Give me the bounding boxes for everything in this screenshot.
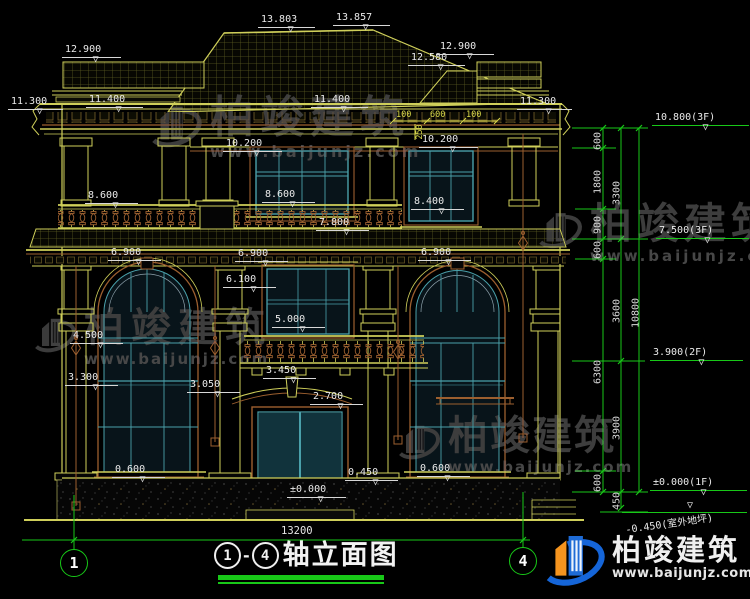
third-floor-window-center bbox=[246, 147, 358, 221]
title-axis-circle-end: 4 bbox=[252, 542, 279, 569]
elevation-marker: 12.900▽ bbox=[437, 41, 494, 55]
brand-footer: 柏竣建筑 www.baijunjz.com bbox=[540, 524, 750, 592]
axis-bubble-1: 1 bbox=[60, 549, 88, 577]
level-triangle-icon: ▽ bbox=[341, 105, 347, 114]
level-triangle-icon: ▽ bbox=[140, 475, 146, 484]
axis-bubble-4: 4 bbox=[509, 547, 537, 575]
level-triangle-icon: ▽ bbox=[445, 474, 451, 483]
dim-text: 1800 bbox=[593, 170, 604, 194]
level-triangle-icon: ▽ bbox=[450, 145, 456, 154]
level-triangle-icon: ▽ bbox=[291, 376, 297, 385]
title-separator: - bbox=[243, 546, 250, 565]
dim-text: 3900 bbox=[612, 416, 623, 440]
level-triangle-icon: ▽ bbox=[215, 390, 221, 399]
level-triangle-icon: ▽ bbox=[37, 107, 43, 116]
level-triangle-icon: ▽ bbox=[446, 258, 452, 267]
elevation-marker: 11.400▽ bbox=[86, 94, 143, 108]
level-triangle-icon: ▽ bbox=[300, 325, 306, 334]
level-triangle-icon: ▽ bbox=[700, 488, 706, 497]
elevation-marker: 11.300▽ bbox=[517, 96, 572, 110]
elevation-marker: 10.200▽ bbox=[419, 134, 478, 148]
elevation-marker: 8.600▽ bbox=[85, 190, 138, 204]
level-triangle-icon: ▽ bbox=[338, 402, 344, 411]
title-text: 轴立面图 bbox=[283, 542, 399, 569]
level-triangle-icon: ▽ bbox=[288, 25, 294, 34]
level-triangle-icon: ▽ bbox=[254, 149, 260, 158]
dim-text: 250 bbox=[415, 124, 425, 139]
dim-text: 450 bbox=[612, 492, 623, 510]
level-triangle-icon: ▽ bbox=[251, 285, 257, 294]
level-triangle-icon: ▽ bbox=[318, 495, 324, 504]
overall-width-dim: 13200 bbox=[281, 525, 313, 537]
level-triangle-icon: ▽ bbox=[113, 201, 119, 210]
level-triangle-icon: ▽ bbox=[93, 55, 99, 64]
floor-level-marker: 10.800(3F)▽ bbox=[652, 112, 749, 126]
elevation-marker: 7.800▽ bbox=[316, 217, 369, 231]
elevation-marker: ±0.000▽ bbox=[287, 484, 346, 498]
floor-level-marker: ±0.000(1F)▽ bbox=[650, 477, 747, 491]
elevation-marker: 4.500▽ bbox=[70, 330, 123, 344]
level-triangle-icon: ▽ bbox=[98, 341, 104, 350]
elevation-marker: 5.000▽ bbox=[272, 314, 325, 328]
elevation-marker: 6.900▽ bbox=[108, 247, 161, 261]
dim-text: 600 bbox=[430, 110, 445, 120]
elevation-marker: 0.600▽ bbox=[112, 464, 165, 478]
level-triangle-icon: ▽ bbox=[344, 228, 350, 237]
dim-text: 3600 bbox=[612, 299, 623, 323]
level-triangle-icon: ▽ bbox=[373, 478, 379, 487]
level-triangle-icon: ▽ bbox=[702, 123, 708, 132]
elevation-marker: 12.900▽ bbox=[62, 44, 121, 58]
elevation-marker: 13.857▽ bbox=[333, 12, 390, 26]
level-triangle-icon: ▽ bbox=[263, 259, 269, 268]
level-triangle-icon: ▽ bbox=[698, 358, 704, 367]
drawing-title: 1 - 4 轴立面图 bbox=[214, 542, 399, 569]
dim-text: 600 bbox=[593, 474, 604, 492]
eave-cornice bbox=[32, 104, 570, 151]
level-triangle-icon: ▽ bbox=[687, 501, 693, 510]
elevation-marker: 6.900▽ bbox=[418, 247, 471, 261]
level-triangle-icon: ▽ bbox=[704, 236, 710, 245]
left-arched-window bbox=[92, 258, 206, 477]
brand-url: www.baijunjz.com bbox=[612, 566, 750, 581]
level-triangle-icon: ▽ bbox=[93, 383, 99, 392]
elevation-marker: 3.300▽ bbox=[65, 372, 118, 386]
dim-text: 900 bbox=[593, 216, 604, 234]
floor-level-marker: 3.900(2F)▽ bbox=[650, 347, 743, 361]
dim-text: 100 bbox=[396, 110, 411, 120]
dim-text: 100 bbox=[466, 110, 481, 120]
floor-level-marker: 7.500(3F)▽ bbox=[656, 225, 749, 239]
elevation-marker: 6.900▽ bbox=[235, 248, 288, 262]
level-triangle-icon: ▽ bbox=[546, 107, 552, 116]
title-underline-thick bbox=[218, 575, 384, 580]
title-axis-circle-start: 1 bbox=[214, 542, 241, 569]
brand-logo bbox=[540, 524, 606, 592]
level-triangle-icon: ▽ bbox=[136, 258, 142, 267]
elevation-marker: 13.803▽ bbox=[258, 14, 315, 28]
dim-text: 600 bbox=[593, 241, 604, 259]
elevation-marker: 8.400▽ bbox=[411, 196, 464, 210]
elevation-marker: 0.450▽ bbox=[345, 467, 398, 481]
cad-elevation-sheet: 柏竣建筑 www.baijunjz.com 柏竣建筑 www.baijunjz.… bbox=[0, 0, 750, 599]
level-triangle-icon: ▽ bbox=[439, 207, 445, 216]
elevation-marker: 10.200▽ bbox=[223, 138, 282, 152]
title-underline-thin bbox=[218, 582, 384, 584]
elevation-marker: 8.600▽ bbox=[262, 189, 315, 203]
level-triangle-icon: ▽ bbox=[290, 200, 296, 209]
level-triangle-icon: ▽ bbox=[438, 63, 444, 72]
elevation-marker: 3.450▽ bbox=[263, 365, 316, 379]
elevation-marker: 6.100▽ bbox=[223, 274, 276, 288]
dim-text: 6300 bbox=[593, 360, 604, 384]
elevation-marker: 3.050▽ bbox=[187, 379, 240, 393]
dim-text: 10800 bbox=[631, 298, 642, 328]
third-floor-window-right bbox=[400, 147, 482, 231]
brand-name: 柏竣建筑 bbox=[612, 535, 750, 565]
level-triangle-icon: ▽ bbox=[116, 105, 122, 114]
elevation-marker: 2.700▽ bbox=[310, 391, 363, 405]
elevation-marker: 11.300▽ bbox=[8, 96, 63, 110]
level-triangle-icon: ▽ bbox=[363, 23, 369, 32]
level-triangle-icon: ▽ bbox=[467, 52, 473, 61]
elevation-marker: 0.600▽ bbox=[417, 463, 470, 477]
right-arched-window bbox=[404, 258, 511, 477]
dim-text: 3300 bbox=[612, 181, 623, 205]
elevation-marker: 11.400▽ bbox=[311, 94, 368, 108]
dim-text: 600 bbox=[593, 132, 604, 150]
